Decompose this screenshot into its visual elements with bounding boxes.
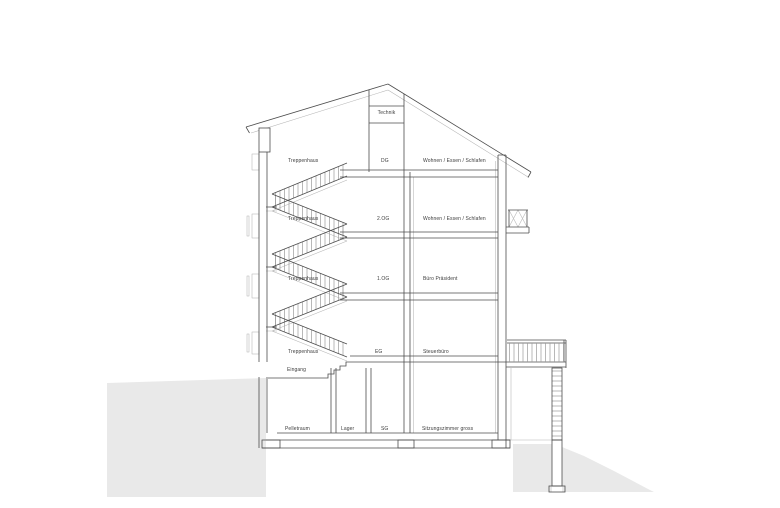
label-room-2og: Wohnen / Essen / Schlafen (423, 216, 486, 222)
building-section-drawing: Technik Treppenhaus DG Wohnen / Essen / … (0, 0, 780, 508)
label-level-eg: EG (375, 349, 382, 355)
label-stair-2og: Treppenhaus (288, 216, 319, 222)
left-facade-window-casements (247, 154, 259, 354)
stair-flight (272, 163, 347, 207)
central-wall (404, 172, 410, 433)
foundation-footings (262, 440, 510, 448)
label-room-1og: Büro Präsident (423, 276, 458, 282)
label-room-eg: Steuerbüro (423, 349, 449, 355)
label-stair-eg: Treppenhaus (288, 349, 319, 355)
terrain-right-slope (562, 447, 654, 492)
label-room-pellet: Pelletraum (285, 426, 310, 432)
label-level-2og: 2.OG (377, 216, 389, 222)
balcony-x-bracing (509, 210, 527, 227)
label-level-sg: SG (381, 426, 388, 432)
terrain-right-near (513, 444, 552, 492)
label-room-sitzungszimmer: Sitzungszimmer gross (422, 426, 474, 432)
terrain (107, 378, 654, 497)
balcony-2og (506, 210, 529, 233)
terrain-left-slope (107, 378, 266, 497)
left-parapet (259, 128, 270, 152)
terrace-eg (506, 340, 566, 368)
label-entrance: Eingang (287, 367, 306, 373)
section-drawing-page: Technik Treppenhaus DG Wohnen / Essen / … (0, 0, 780, 508)
label-room-lager: Lager (341, 426, 355, 432)
label-room-dg: Wohnen / Essen / Schlafen (423, 158, 486, 164)
staircase (272, 163, 347, 357)
entrance-steps (268, 362, 352, 378)
label-level-dg: DG (381, 158, 389, 164)
label-stair-dg: Treppenhaus (288, 158, 319, 164)
label-level-1og: 1.OG (377, 276, 389, 282)
interior-finish-lines (414, 161, 553, 440)
right-wall (498, 155, 506, 448)
label-attic-room: Technik (378, 110, 396, 116)
basement-partitions (331, 368, 371, 433)
label-stair-1og: Treppenhaus (288, 276, 319, 282)
